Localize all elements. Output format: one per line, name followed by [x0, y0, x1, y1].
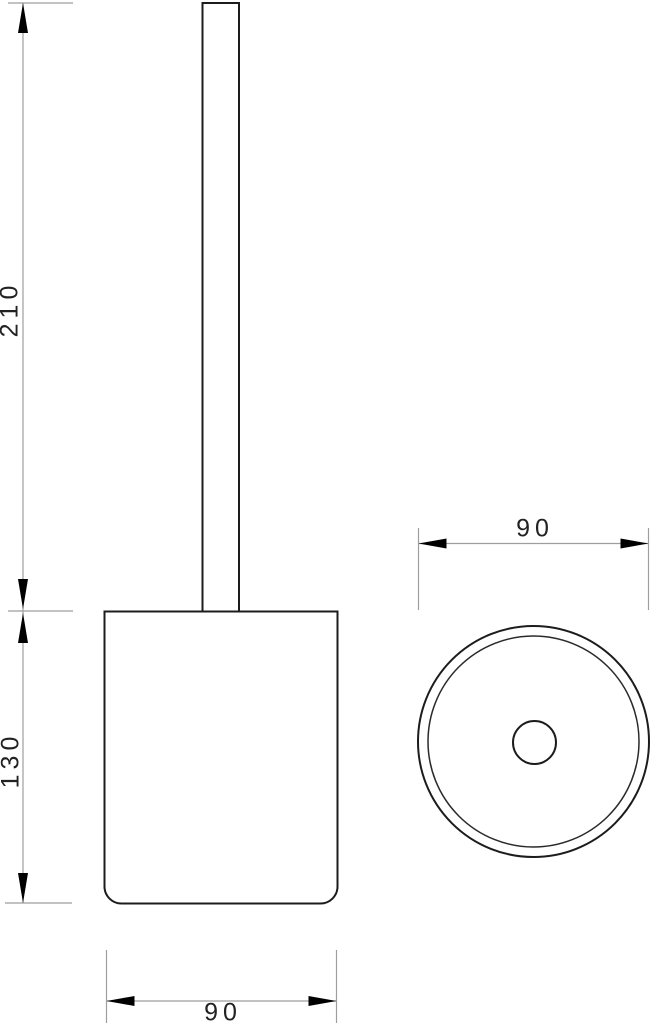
- arrowhead-width-left: [107, 996, 135, 1006]
- top-view-inner-rim-circle: [428, 636, 639, 847]
- top-view-center-hole-circle: [513, 721, 556, 764]
- dimension-label-handle-height: 210: [0, 281, 23, 338]
- arrowhead-210-bottom: [18, 579, 28, 609]
- dimension-label-container-height: 130: [0, 732, 24, 789]
- side-view-container-outline: [105, 612, 338, 904]
- arrowhead-210-top: [18, 3, 28, 33]
- dimension-label-container-width: 90: [204, 1001, 242, 1024]
- side-view-handle-outline: [203, 3, 240, 612]
- dimension-label-top-view-diameter: 90: [516, 517, 554, 542]
- arrowhead-diameter-right: [621, 539, 649, 549]
- technical-drawing-canvas: 210 130 90 90: [0, 0, 651, 1024]
- arrowhead-130-top: [18, 613, 28, 643]
- arrowhead-130-bottom: [18, 873, 28, 903]
- drawing-linework: [0, 0, 651, 1024]
- top-view-outer-circle: [418, 626, 649, 857]
- arrowhead-diameter-left: [419, 539, 447, 549]
- arrowhead-width-right: [309, 996, 337, 1006]
